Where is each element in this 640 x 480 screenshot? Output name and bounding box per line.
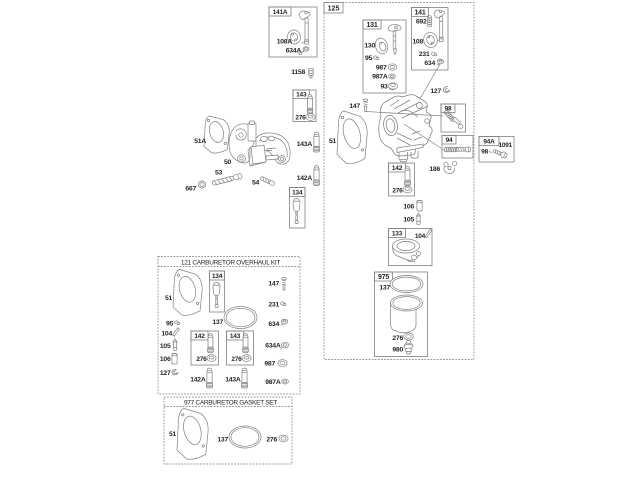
svg-text:121 CARBURETOR OVERHAUL KIT: 121 CARBURETOR OVERHAUL KIT bbox=[181, 260, 281, 267]
svg-text:231: 231 bbox=[419, 51, 430, 58]
svg-text:141A: 141A bbox=[273, 9, 288, 16]
svg-text:133: 133 bbox=[392, 231, 403, 238]
svg-text:106: 106 bbox=[403, 204, 414, 211]
svg-text:142A: 142A bbox=[297, 175, 313, 182]
svg-text:131: 131 bbox=[366, 22, 377, 29]
svg-text:50: 50 bbox=[224, 159, 232, 166]
svg-text:137: 137 bbox=[212, 319, 223, 326]
svg-text:54: 54 bbox=[252, 180, 260, 187]
svg-text:104: 104 bbox=[415, 233, 426, 240]
svg-text:667: 667 bbox=[185, 186, 196, 193]
svg-text:975: 975 bbox=[378, 274, 389, 281]
svg-text:987: 987 bbox=[376, 65, 387, 72]
svg-text:51: 51 bbox=[165, 295, 173, 302]
svg-text:51: 51 bbox=[169, 431, 177, 438]
svg-text:134: 134 bbox=[292, 190, 303, 197]
svg-text:634: 634 bbox=[268, 321, 279, 328]
svg-text:276: 276 bbox=[295, 115, 306, 122]
svg-text:134: 134 bbox=[212, 273, 223, 280]
svg-text:104: 104 bbox=[161, 331, 172, 338]
svg-text:137: 137 bbox=[217, 437, 228, 444]
svg-text:137: 137 bbox=[379, 285, 390, 292]
svg-text:276: 276 bbox=[196, 356, 207, 363]
svg-text:142: 142 bbox=[392, 165, 403, 172]
svg-text:108: 108 bbox=[412, 39, 423, 46]
svg-text:186: 186 bbox=[429, 166, 440, 173]
svg-text:142A: 142A bbox=[190, 377, 206, 384]
svg-text:53: 53 bbox=[215, 170, 223, 177]
svg-text:127: 127 bbox=[160, 370, 171, 377]
svg-text:276: 276 bbox=[231, 356, 242, 363]
svg-text:108A: 108A bbox=[277, 39, 293, 46]
svg-text:142: 142 bbox=[194, 333, 205, 340]
svg-text:51: 51 bbox=[329, 138, 337, 145]
svg-text:105: 105 bbox=[403, 217, 414, 224]
svg-text:634A: 634A bbox=[265, 343, 281, 350]
svg-text:143A: 143A bbox=[297, 141, 313, 148]
svg-text:125: 125 bbox=[328, 6, 340, 13]
svg-text:276: 276 bbox=[266, 437, 277, 444]
svg-text:634: 634 bbox=[424, 60, 435, 67]
svg-text:105: 105 bbox=[160, 343, 171, 350]
svg-text:1091: 1091 bbox=[499, 142, 513, 149]
svg-text:143: 143 bbox=[230, 333, 241, 340]
svg-text:51A: 51A bbox=[194, 138, 206, 145]
svg-text:634A: 634A bbox=[286, 48, 302, 55]
svg-text:143A: 143A bbox=[225, 377, 241, 384]
svg-text:147: 147 bbox=[349, 103, 360, 110]
svg-text:95: 95 bbox=[166, 321, 174, 328]
svg-text:98: 98 bbox=[481, 149, 488, 156]
svg-text:141: 141 bbox=[414, 10, 425, 17]
svg-text:147: 147 bbox=[268, 281, 279, 288]
svg-text:94A: 94A bbox=[483, 139, 495, 146]
svg-text:95: 95 bbox=[365, 55, 373, 62]
svg-text:94: 94 bbox=[446, 137, 453, 144]
svg-text:231: 231 bbox=[268, 302, 279, 309]
svg-text:127: 127 bbox=[430, 88, 441, 95]
svg-text:106: 106 bbox=[160, 356, 171, 363]
svg-text:980: 980 bbox=[392, 347, 403, 354]
svg-text:130: 130 bbox=[364, 43, 375, 50]
svg-text:977 CARBURETOR GASKET SET: 977 CARBURETOR GASKET SET bbox=[184, 400, 277, 407]
svg-text:143: 143 bbox=[296, 92, 307, 99]
svg-text:987A: 987A bbox=[372, 74, 388, 81]
svg-text:987A: 987A bbox=[265, 379, 281, 386]
svg-text:276: 276 bbox=[392, 335, 403, 342]
svg-text:987: 987 bbox=[264, 361, 275, 368]
svg-text:692: 692 bbox=[416, 19, 427, 26]
svg-text:1158: 1158 bbox=[291, 69, 305, 76]
svg-text:276: 276 bbox=[392, 188, 403, 195]
svg-text:93: 93 bbox=[380, 84, 388, 91]
